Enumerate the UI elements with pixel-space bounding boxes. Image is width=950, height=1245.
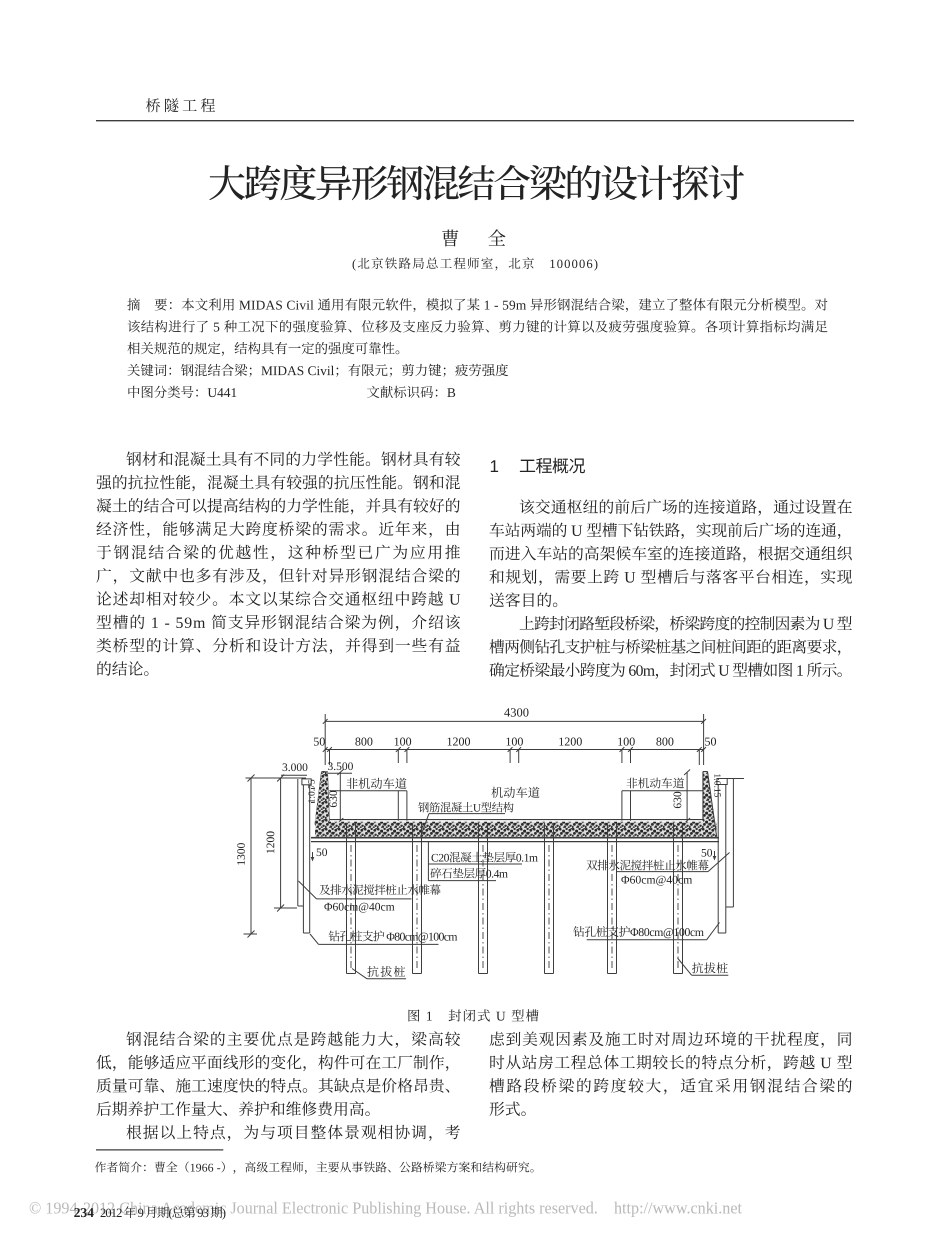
svg-text:© 1994-2012 China Academic Jou: © 1994-2012 China Academic Journal Elect… xyxy=(29,1199,742,1218)
